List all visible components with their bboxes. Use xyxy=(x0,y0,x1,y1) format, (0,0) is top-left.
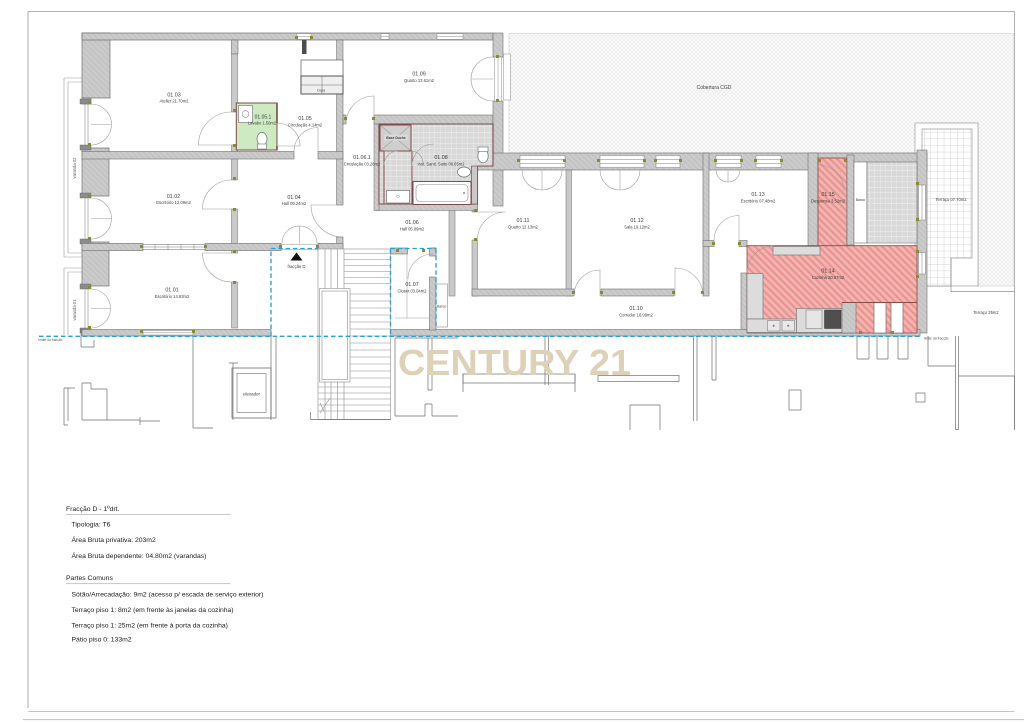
svg-text:Circulação 03.26m2: Circulação 03.26m2 xyxy=(344,162,381,167)
svg-text:CENTURY 21: CENTURY 21 xyxy=(398,342,631,383)
svg-text:Banco: Banco xyxy=(856,198,866,202)
svg-text:01.09: 01.09 xyxy=(412,72,425,78)
svg-text:Closet 03.04m2: Closet 03.04m2 xyxy=(397,289,427,294)
svg-text:Quarto 13.61m2: Quarto 13.61m2 xyxy=(404,78,435,83)
svg-text:Circulação 4.14m2: Circulação 4.14m2 xyxy=(288,123,323,128)
svg-text:varanda 02: varanda 02 xyxy=(72,157,77,179)
svg-text:Escritório 12.09m2: Escritório 12.09m2 xyxy=(156,200,191,205)
svg-text:Lavabo 1.50m2: Lavabo 1.50m2 xyxy=(248,121,277,126)
svg-text:Atelier 21.70m2: Atelier 21.70m2 xyxy=(159,99,189,104)
svg-text:01.12: 01.12 xyxy=(630,218,643,224)
svg-text:Inst. Sanit. Suite 06.65m2: Inst. Sanit. Suite 06.65m2 xyxy=(418,162,466,167)
svg-text:Cozinha 20.67m2: Cozinha 20.67m2 xyxy=(812,275,845,280)
svg-text:elevador: elevador xyxy=(243,392,260,397)
svg-text:Pátio piso 0: 133m2: Pátio piso 0: 133m2 xyxy=(72,637,132,644)
svg-text:Corredor 16.99m2: Corredor 16.99m2 xyxy=(619,313,653,318)
svg-text:Área Bruta dependente: 04.80m2: Área Bruta dependente: 04.80m2 (varandas… xyxy=(72,551,207,560)
svg-text:Partes Comuns: Partes Comuns xyxy=(66,575,113,582)
svg-text:fracção D: fracção D xyxy=(288,264,306,269)
svg-text:Sala 19.12m2: Sala 19.12m2 xyxy=(624,225,650,230)
svg-text:Escritório 14.63m2: Escritório 14.63m2 xyxy=(155,294,190,299)
svg-text:Escritório 07.48m2: Escritório 07.48m2 xyxy=(741,199,776,204)
svg-text:Terraço piso 1: 8m2 (em frente: Terraço piso 1: 8m2 (em frente às janela… xyxy=(72,607,234,614)
svg-text:Hall 05.09m2: Hall 05.09m2 xyxy=(400,227,425,232)
svg-text:Hall 09.24m2: Hall 09.24m2 xyxy=(282,201,307,206)
svg-text:Terraço 07.70m2: Terraço 07.70m2 xyxy=(935,197,967,202)
svg-text:01.01: 01.01 xyxy=(165,288,178,294)
svg-text:Fracção D - 1ºdrt.: Fracção D - 1ºdrt. xyxy=(66,506,120,513)
svg-text:Copa: Copa xyxy=(317,89,325,93)
svg-text:Banco: Banco xyxy=(437,305,446,309)
svg-text:Área Bruta privativa: 203m2: Área Bruta privativa: 203m2 xyxy=(72,535,156,544)
svg-text:01.13: 01.13 xyxy=(751,192,764,198)
svg-text:Cobertura CGD: Cobertura CGD xyxy=(697,85,732,91)
svg-text:Sótão/Arrecadação: 9m2 (acesso: Sótão/Arrecadação: 9m2 (acesso p/ escada… xyxy=(72,592,264,599)
svg-text:Terraço 25m2: Terraço 25m2 xyxy=(973,310,999,315)
svg-text:01.14: 01.14 xyxy=(821,269,834,275)
svg-text:01.06.1: 01.06.1 xyxy=(353,155,371,161)
svg-text:01.15: 01.15 xyxy=(821,192,834,198)
svg-text:Tipologia: T6: Tipologia: T6 xyxy=(72,522,111,529)
svg-text:01.06: 01.06 xyxy=(405,220,418,226)
svg-text:01.07: 01.07 xyxy=(405,282,418,288)
svg-text:Despensa 3.52m2: Despensa 3.52m2 xyxy=(811,199,846,204)
svg-text:limite da fracção: limite da fracção xyxy=(924,337,949,341)
svg-text:01.11: 01.11 xyxy=(517,218,530,224)
svg-text:01.05: 01.05 xyxy=(298,116,311,122)
svg-text:limite da fracção: limite da fracção xyxy=(39,338,63,342)
svg-text:varanda 01: varanda 01 xyxy=(72,299,77,321)
svg-text:Base Duche: Base Duche xyxy=(386,136,406,140)
svg-text:01.10: 01.10 xyxy=(629,306,642,312)
svg-text:Quarto 12.13m2: Quarto 12.13m2 xyxy=(508,225,539,230)
svg-text:Terraço piso 1: 25m2 (em frent: Terraço piso 1: 25m2 (em frente à porta … xyxy=(72,623,228,630)
svg-text:01.08: 01.08 xyxy=(434,155,447,161)
